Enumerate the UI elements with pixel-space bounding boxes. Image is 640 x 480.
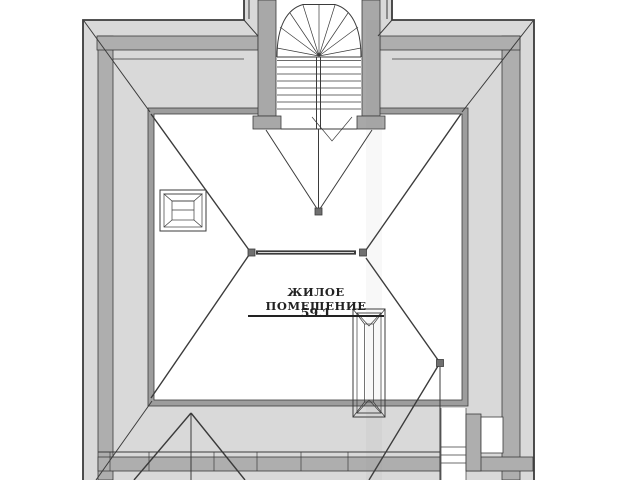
plan-drawing <box>0 0 640 480</box>
staircase <box>253 0 385 141</box>
floor-plan-scan: ЖИЛОЕ ПОМЕЩЕНИЕ 59.1 <box>0 0 640 480</box>
scan-artifact <box>366 20 382 480</box>
room-area-value: 59.1 <box>248 305 384 320</box>
